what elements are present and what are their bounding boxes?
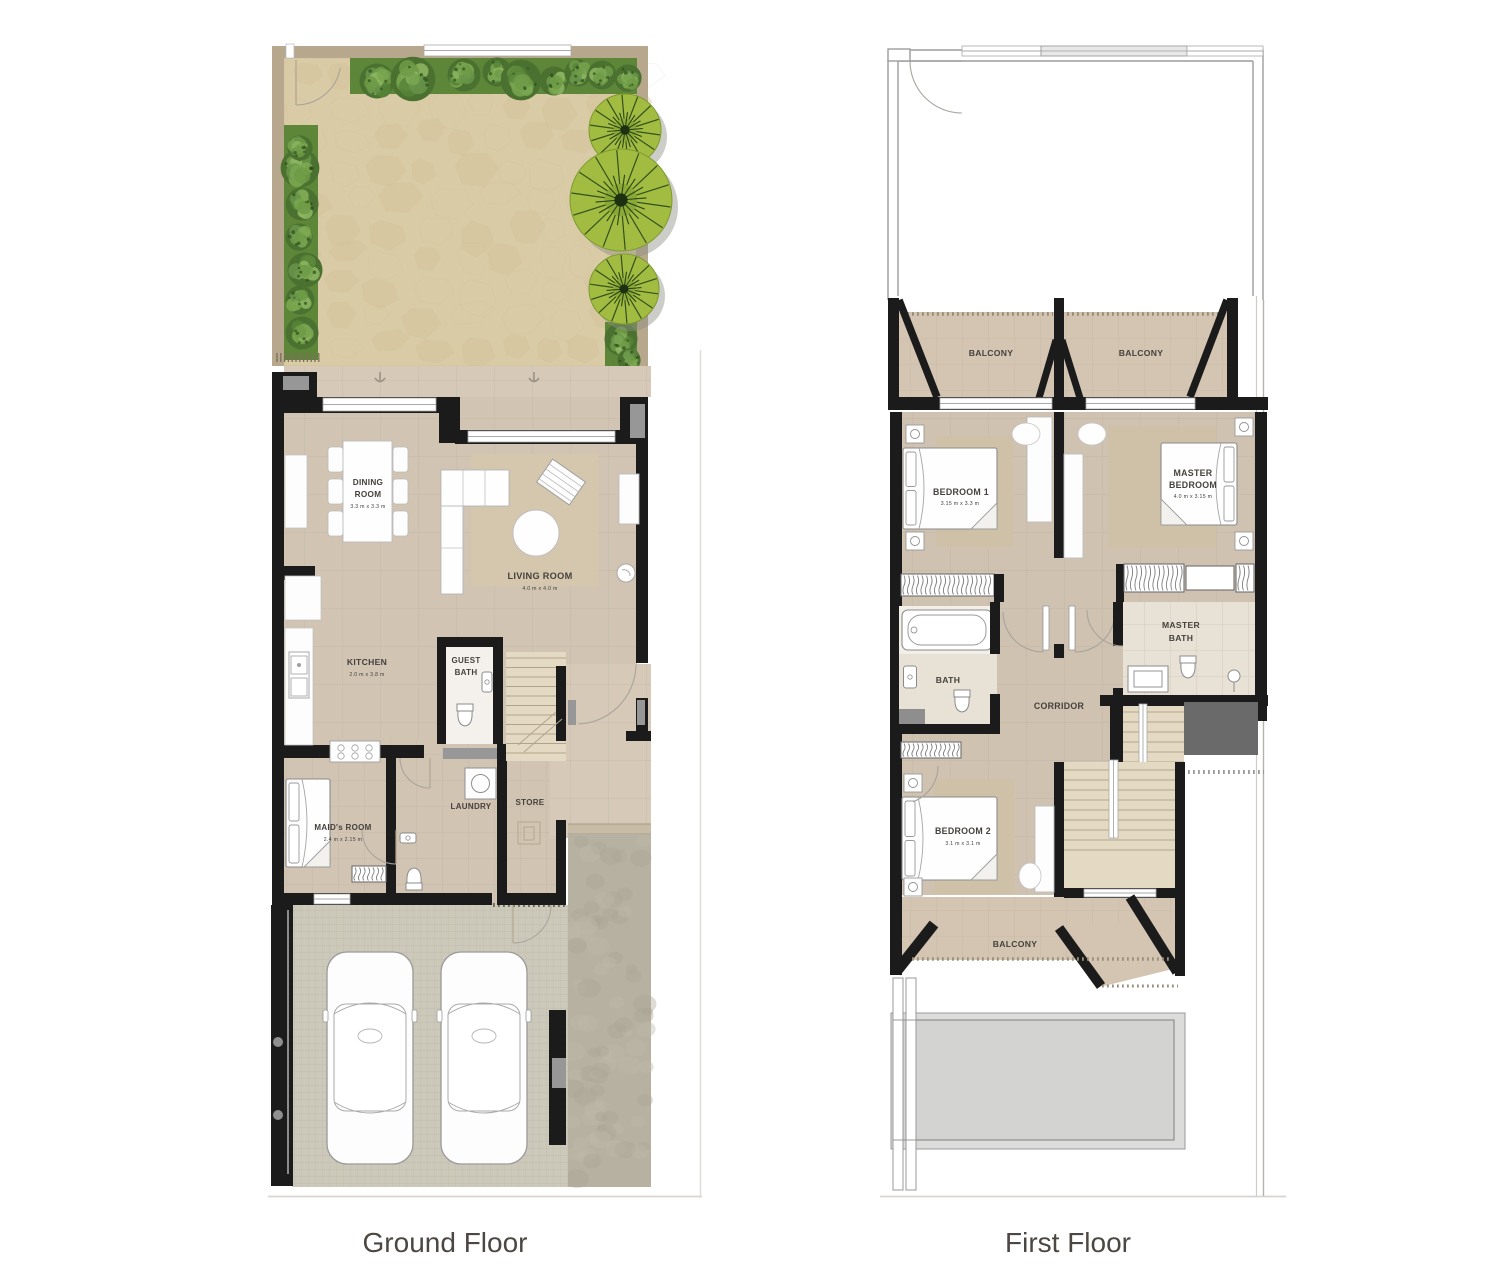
svg-text:MASTER: MASTER [1162, 620, 1201, 630]
svg-text:BALCONY: BALCONY [1119, 348, 1164, 358]
svg-text:Ground Floor: Ground Floor [363, 1227, 528, 1258]
svg-text:BEDROOM 1: BEDROOM 1 [933, 487, 989, 497]
svg-text:BATH: BATH [936, 675, 960, 685]
svg-text:BALCONY: BALCONY [969, 348, 1014, 358]
svg-text:CORRIDOR: CORRIDOR [1034, 701, 1085, 711]
svg-text:3.15 m x 3.3 m: 3.15 m x 3.3 m [941, 501, 980, 507]
svg-text:KITCHEN: KITCHEN [347, 657, 387, 667]
svg-text:LAUNDRY: LAUNDRY [451, 802, 492, 811]
svg-text:2.4 m x 2.15 m: 2.4 m x 2.15 m [324, 837, 363, 843]
svg-text:BALCONY: BALCONY [993, 939, 1038, 949]
svg-text:DINING: DINING [353, 478, 383, 487]
svg-text:4.0 m x 3.15 m: 4.0 m x 3.15 m [1174, 494, 1213, 500]
svg-text:4.0 m x 4.0 m: 4.0 m x 4.0 m [522, 586, 557, 592]
svg-text:BATH: BATH [1169, 633, 1193, 643]
svg-text:ROOM: ROOM [355, 490, 382, 499]
svg-text:BATH: BATH [455, 668, 478, 677]
svg-text:BEDROOM 2: BEDROOM 2 [935, 826, 991, 836]
svg-text:MASTER: MASTER [1174, 468, 1213, 478]
svg-text:3.3 m x 3.3 m: 3.3 m x 3.3 m [350, 504, 385, 510]
svg-text:STORE: STORE [516, 798, 545, 807]
svg-text:First Floor: First Floor [1005, 1227, 1131, 1258]
svg-text:MAID's ROOM: MAID's ROOM [314, 823, 371, 832]
svg-text:BEDROOM: BEDROOM [1169, 480, 1217, 490]
svg-text:LIVING ROOM: LIVING ROOM [507, 571, 572, 581]
svg-text:2.0 m x 3.8 m: 2.0 m x 3.8 m [349, 672, 384, 678]
svg-text:3.1 m x 3.1 m: 3.1 m x 3.1 m [945, 841, 980, 847]
svg-text:GUEST: GUEST [451, 656, 480, 665]
